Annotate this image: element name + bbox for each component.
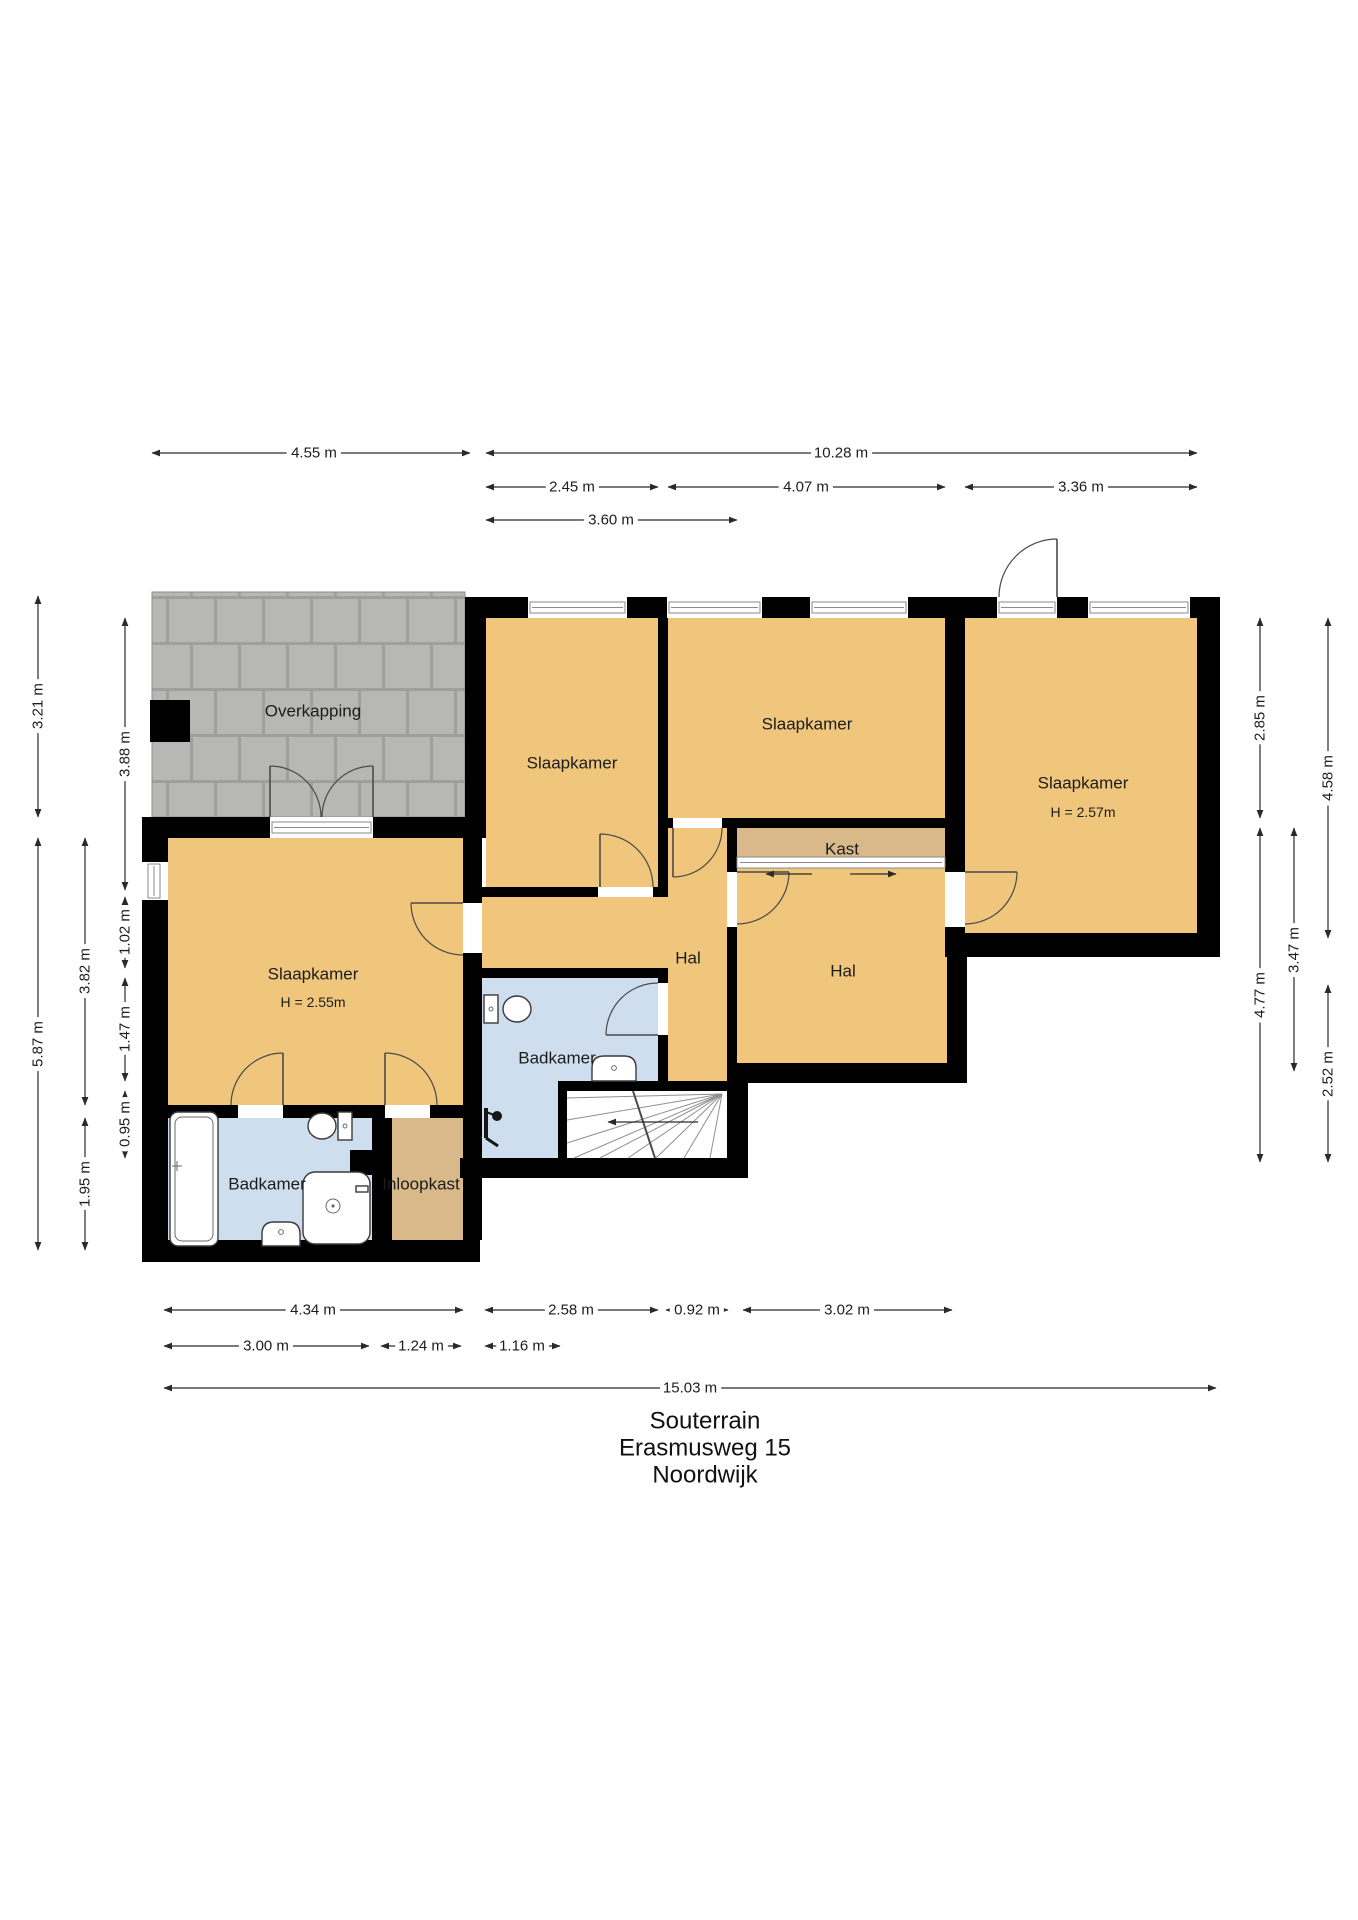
window xyxy=(142,862,168,900)
dimension-line: 3.02 m xyxy=(743,1302,952,1319)
dimension-label: 2.52 m xyxy=(1320,1051,1337,1097)
dimension-label: 2.45 m xyxy=(549,479,595,496)
dimension-label: 4.34 m xyxy=(290,1302,336,1319)
dimension-label: 10.28 m xyxy=(814,445,868,462)
title-floor-name: Souterrain xyxy=(650,1408,761,1435)
dimension-label: 3.02 m xyxy=(824,1302,870,1319)
floorplan-drawing: Overkapping Slaapkamer Slaapkamer Slaapk… xyxy=(0,0,1358,1920)
dimension-label: 1.16 m xyxy=(499,1338,545,1355)
bathtub-icon xyxy=(170,1112,218,1246)
dimension-label: 4.07 m xyxy=(783,479,829,496)
dimension-line: 3.47 m xyxy=(1286,828,1303,1071)
dimension-line: 1.02 m xyxy=(117,897,134,968)
dimension-label: 3.21 m xyxy=(30,683,47,729)
dimension-line: 4.55 m xyxy=(152,445,470,462)
room-label-hal-right: Hal xyxy=(830,962,856,981)
window xyxy=(667,597,762,618)
dimension-line: 4.58 m xyxy=(1320,618,1337,938)
stairwell-floor xyxy=(567,1091,727,1158)
dimension-line: 2.85 m xyxy=(1252,618,1269,818)
dimension-label: 1.95 m xyxy=(77,1161,94,1207)
dimension-label: 2.58 m xyxy=(548,1302,594,1319)
dimension-line: 3.36 m xyxy=(965,479,1197,496)
dimension-label: 5.87 m xyxy=(30,1021,47,1067)
dimension-label: 1.47 m xyxy=(117,1006,134,1052)
dimension-label: 4.58 m xyxy=(1320,755,1337,801)
room-label-badkamer-left: Badkamer xyxy=(228,1175,306,1194)
dimension-label: 2.85 m xyxy=(1252,695,1269,741)
dimension-label: 4.55 m xyxy=(291,445,337,462)
room-label-overkapping: Overkapping xyxy=(265,702,361,721)
door-arc xyxy=(999,539,1057,597)
dimension-line: 3.60 m xyxy=(486,512,737,529)
dimension-label: 3.00 m xyxy=(243,1338,289,1355)
title-block: Souterrain Erasmusweg 15 Noordwijk xyxy=(619,1408,791,1489)
room-height-slaapkamer-large: H = 2.55m xyxy=(281,994,346,1010)
dimensions-right: 2.85 m 4.77 m 3.47 m 4.58 m 2.52 m xyxy=(1252,618,1337,1162)
dimension-line: 1.24 m xyxy=(381,1338,461,1355)
room-badkamer-middle-leg-floor xyxy=(482,1081,558,1158)
dimension-label: 3.82 m xyxy=(77,948,94,994)
dimension-label: 0.95 m xyxy=(117,1101,134,1147)
dimension-line: 1.95 m xyxy=(77,1118,94,1250)
dimension-label: 3.88 m xyxy=(117,731,134,777)
window xyxy=(528,597,627,618)
dimension-label: 15.03 m xyxy=(663,1380,717,1397)
dimension-line: 1.16 m xyxy=(485,1338,560,1355)
dimension-line: 2.58 m xyxy=(485,1302,658,1319)
dimension-line: 1.47 m xyxy=(117,978,134,1081)
dimension-label: 0.92 m xyxy=(674,1302,720,1319)
dimension-label: 3.36 m xyxy=(1058,479,1104,496)
floorplan-page: Overkapping Slaapkamer Slaapkamer Slaapk… xyxy=(0,0,1358,1920)
sink-icon xyxy=(592,1056,636,1081)
dimension-line: 10.28 m xyxy=(486,445,1197,462)
room-label-slaapkamer-large: Slaapkamer xyxy=(268,965,359,984)
dimension-line: 0.95 m xyxy=(117,1091,134,1158)
dimensions-left: 3.21 m 5.87 m 3.82 m 1.95 m 3.88 m 1.02 … xyxy=(30,596,134,1250)
dimension-line: 3.82 m xyxy=(77,838,94,1105)
entrance-door-threshold xyxy=(999,602,1055,613)
toilet-icon xyxy=(484,995,531,1023)
window xyxy=(1088,597,1190,618)
shower-icon xyxy=(303,1172,370,1244)
window xyxy=(810,597,908,618)
dimension-label: 3.60 m xyxy=(588,512,634,529)
room-label-kast: Kast xyxy=(825,840,859,859)
title-address: Erasmusweg 15 xyxy=(619,1435,791,1462)
dimension-line: 3.88 m xyxy=(117,618,134,890)
dimension-line: 4.07 m xyxy=(668,479,945,496)
room-label-hal-middle: Hal xyxy=(675,949,701,968)
room-label-slaapkamer-top-left: Slaapkamer xyxy=(527,754,618,773)
dimension-label: 1.02 m xyxy=(117,909,134,955)
room-height-slaapkamer-right: H = 2.57m xyxy=(1051,804,1116,820)
dimensions-top: 4.55 m 10.28 m 2.45 m 4.07 m 3.36 m 3.60… xyxy=(152,445,1197,529)
dimension-line: 15.03 m xyxy=(164,1380,1216,1397)
french-door-threshold xyxy=(272,822,371,833)
dimension-label: 1.24 m xyxy=(398,1338,444,1355)
dimension-line: 4.34 m xyxy=(164,1302,463,1319)
dimension-label: 3.47 m xyxy=(1286,927,1303,973)
dimension-line: 3.21 m xyxy=(30,596,47,817)
dimension-line: 2.52 m xyxy=(1320,985,1337,1162)
title-city: Noordwijk xyxy=(652,1462,758,1489)
dimension-line: 0.92 m xyxy=(666,1302,728,1319)
dimensions-bottom: 4.34 m 2.58 m 0.92 m 3.02 m 3.00 m 1.24 … xyxy=(164,1302,1216,1397)
sink-icon xyxy=(262,1222,300,1246)
dimension-line: 3.00 m xyxy=(164,1338,369,1355)
dimension-line: 2.45 m xyxy=(486,479,658,496)
dimension-line: 5.87 m xyxy=(30,838,47,1250)
room-label-inloopkast: Inloopkast xyxy=(382,1175,460,1194)
room-label-slaapkamer-top-middle: Slaapkamer xyxy=(762,715,853,734)
dimension-label: 4.77 m xyxy=(1252,972,1269,1018)
dimension-line: 4.77 m xyxy=(1252,828,1269,1162)
room-label-badkamer-middle: Badkamer xyxy=(518,1049,596,1068)
pillar xyxy=(150,700,190,742)
toilet-icon xyxy=(308,1112,352,1140)
room-label-slaapkamer-right: Slaapkamer xyxy=(1038,774,1129,793)
